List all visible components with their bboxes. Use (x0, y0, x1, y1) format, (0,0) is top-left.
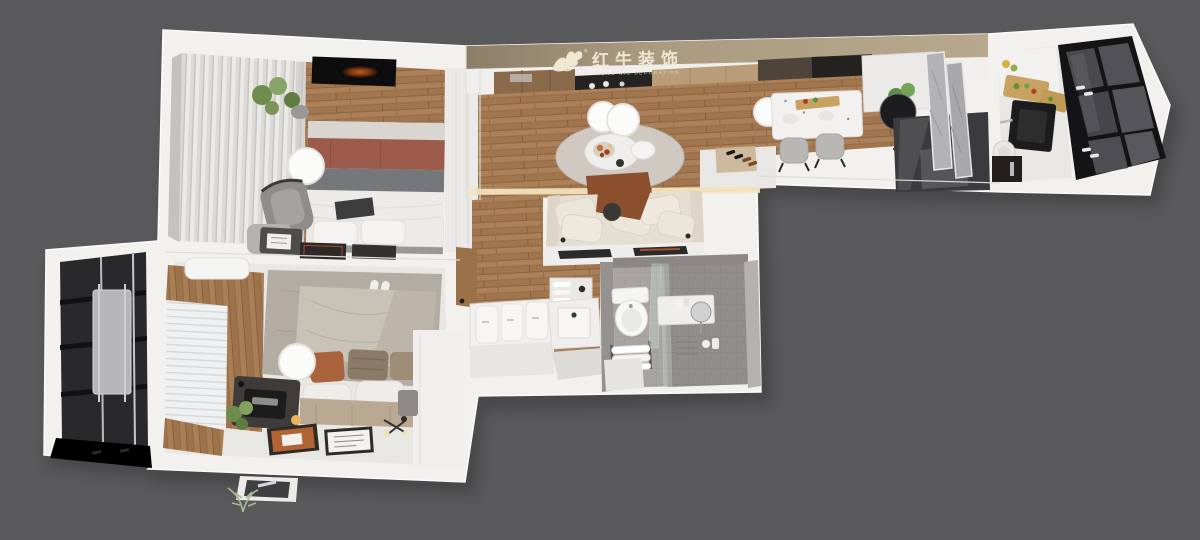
storage-basket (398, 390, 418, 416)
registered-mark: ® (584, 47, 588, 54)
pillow (361, 220, 405, 245)
bench-cushion (476, 306, 498, 343)
faucet (571, 312, 576, 317)
entry-mat-shoes (715, 146, 757, 173)
round-pillow (603, 203, 621, 221)
ac-unit (185, 258, 249, 279)
bedroom-master (163, 258, 463, 468)
fruit (1011, 65, 1018, 72)
teapot (616, 159, 624, 167)
vanity-accessory (579, 286, 585, 292)
fruit (1002, 60, 1010, 68)
picture-frame-orange (267, 423, 320, 455)
floorplan-svg: ® 红牛装饰 HONG NIU DECORATION (0, 0, 1200, 540)
watermark-title: 红牛装饰 (592, 48, 684, 70)
side-table (259, 227, 302, 255)
pendant-lamps (588, 102, 639, 136)
bench-cushion (526, 302, 548, 339)
tv-screen-glow (341, 66, 379, 78)
cabinet-handle (1010, 162, 1014, 176)
pendant-lamp (288, 148, 324, 184)
window-blinds (165, 300, 228, 432)
pillow-plaid (347, 349, 389, 381)
towel-roll (553, 282, 571, 287)
hall-sideboard (456, 247, 477, 308)
storage-bench (470, 299, 554, 378)
pendant-lamp (279, 344, 315, 380)
sofa-pillow (560, 213, 603, 243)
counter-screen (812, 55, 871, 79)
towel-roll (553, 290, 571, 295)
bathroom-door-opening (604, 358, 644, 391)
picture-frame-white (324, 426, 374, 455)
dining-table (771, 90, 863, 139)
bathroom (600, 254, 761, 392)
side-stool (631, 141, 655, 159)
bedroom-secondary (168, 53, 480, 260)
table-lamp-glow (291, 415, 301, 425)
cabinet-mirror (510, 74, 532, 82)
hook (460, 299, 465, 304)
balcony-left (50, 252, 152, 468)
dark-cabinet (992, 156, 1022, 182)
pillow (313, 221, 357, 246)
bench-cushion (501, 304, 523, 341)
floorplan-render: ® 红牛装饰 HONG NIU DECORATION (0, 0, 1200, 540)
bed-secondary (306, 121, 445, 254)
